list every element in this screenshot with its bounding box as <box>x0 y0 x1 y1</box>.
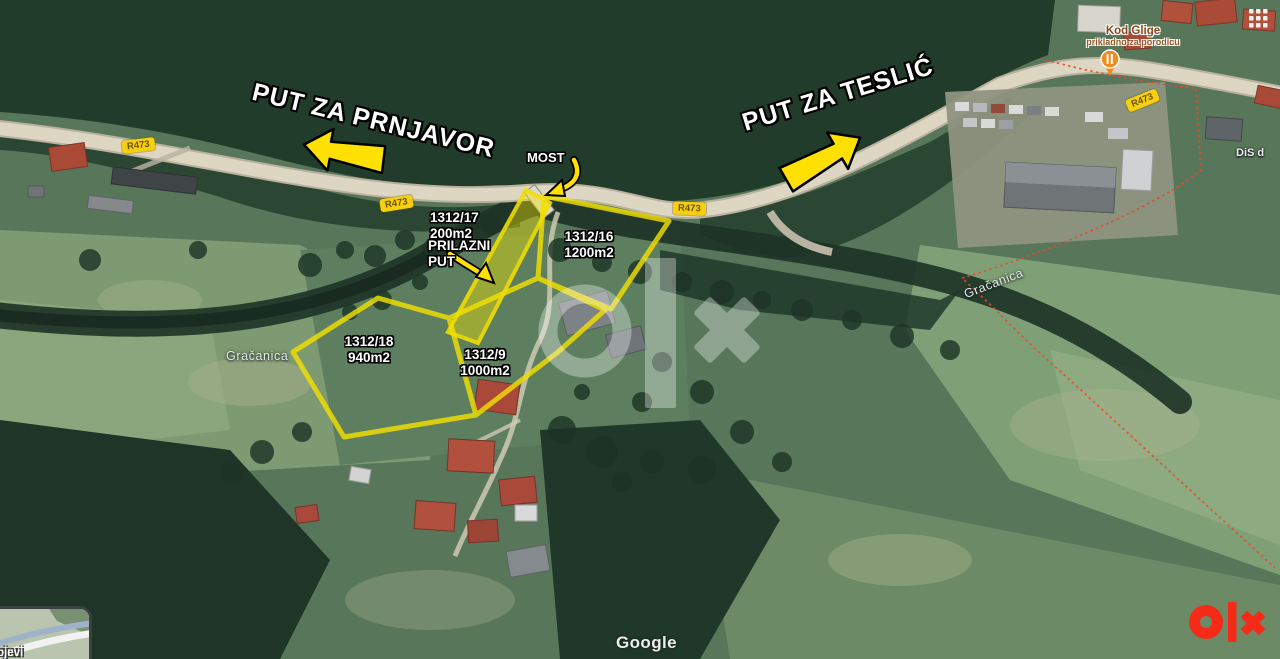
parcel-9-area: 1000m2 <box>450 363 520 379</box>
parcel-9-id: 1312/9 <box>450 347 520 363</box>
business-label-partial: DiS d <box>1236 147 1264 159</box>
satellite-map-background <box>0 0 1280 659</box>
google-attribution: Google <box>616 633 677 653</box>
river-label-left: Gračanica <box>226 349 288 363</box>
satellite-map-screenshot: PUT ZA PRNJAVOR PUT ZA TESLIĆ MOST 1312/… <box>0 0 1280 659</box>
poi-kod-glige: Kod Glige prikladno za porodicu <box>1078 25 1188 47</box>
parcel-16-area: 1200m2 <box>556 245 622 261</box>
access-road-note-line1: PRILAZNI <box>428 238 490 254</box>
parcel-18-id: 1312/18 <box>336 334 402 350</box>
parcel-18-label: 1312/18 940m2 <box>336 334 402 367</box>
access-road-note: PRILAZNI PUT <box>428 238 490 271</box>
parcel-18-area: 940m2 <box>336 350 402 366</box>
minimap-place-label-partial: ojevi <box>0 647 23 659</box>
poi-subtitle: prikladno za porodicu <box>1078 37 1188 47</box>
parcel-16-id: 1312/16 <box>556 229 622 245</box>
parcel-17-id: 1312/17 <box>430 210 479 226</box>
bridge-label: MOST <box>527 150 565 165</box>
access-road-note-line2: PUT <box>428 254 490 270</box>
parcel-9-label: 1312/9 1000m2 <box>450 347 520 380</box>
grid-dots-icon <box>1249 9 1268 28</box>
parcel-16-label: 1312/16 1200m2 <box>556 229 622 262</box>
poi-name: Kod Glige <box>1078 25 1188 37</box>
minimap-inset[interactable]: ojevi <box>0 606 92 659</box>
road-badge-r473-3: R473 <box>673 201 706 215</box>
